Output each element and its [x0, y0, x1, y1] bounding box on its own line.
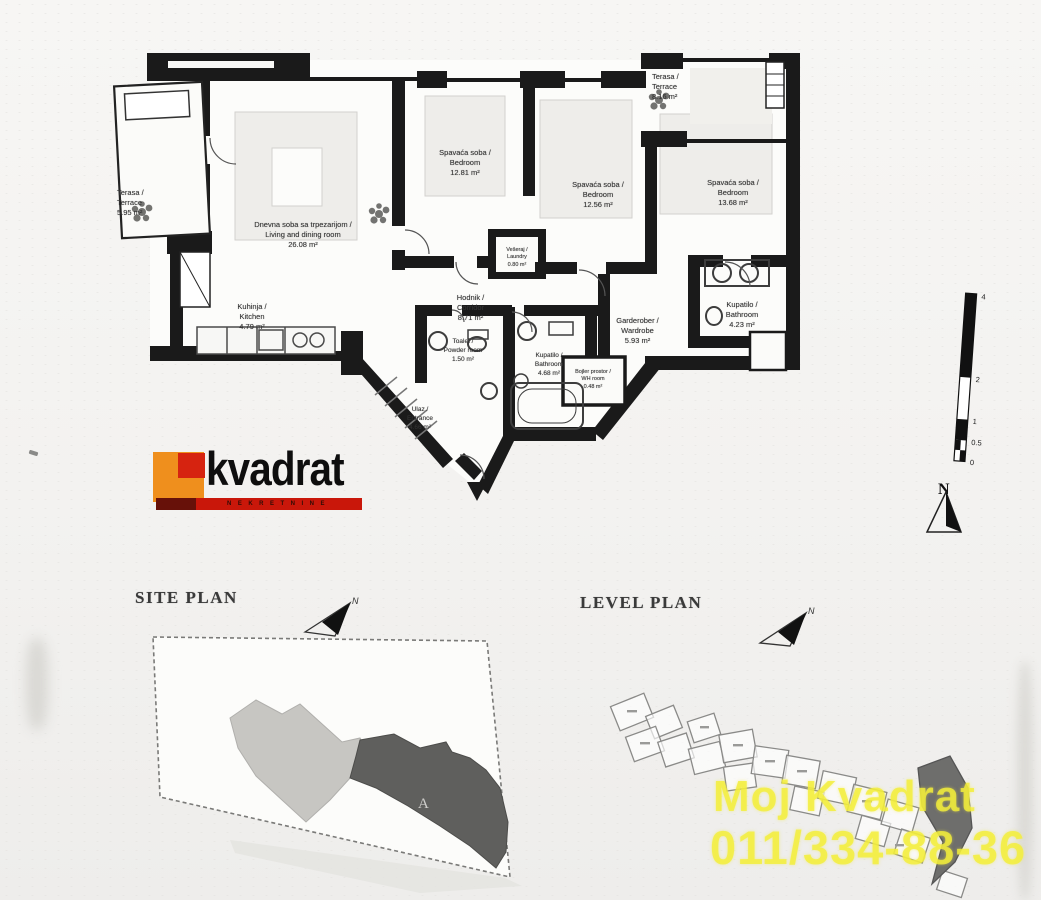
- site-plan-title: SITE PLAN: [135, 588, 238, 608]
- level-plan-title: LEVEL PLAN: [580, 593, 702, 613]
- scale-bar: 4 2 1 0.5 0: [954, 291, 993, 467]
- room-label-terrace-left: Terasa / Terrace5.95 m²: [117, 178, 169, 228]
- room-label-bathroom-2: Kupatilo / Bathroom4.23 m²: [708, 290, 776, 340]
- room-label-bedroom-1: Spavaća soba / Bedroom12.81 m²: [425, 138, 505, 188]
- svg-text:N: N: [352, 596, 359, 606]
- room-label-laundry: Vešeraj / Laundry0.80 m²: [496, 240, 538, 277]
- scan-smudge-left: [26, 638, 48, 730]
- room-label-wardrobe: Garderober / Wardrobe5.93 m²: [600, 306, 675, 356]
- logo-tagline: NEKRETNINE: [187, 501, 331, 507]
- svg-text:0.5: 0.5: [971, 438, 982, 448]
- room-label-entrance: Ulaz / Entrance4.66 m²: [392, 398, 448, 441]
- site-plan-drawing: A N: [153, 596, 522, 893]
- north-arrow: N: [927, 481, 961, 532]
- svg-text:1: 1: [972, 417, 977, 426]
- room-label-powder-room: Toalet / Powder room1.50 m²: [428, 330, 498, 373]
- kvadrat-logo: kvadrat NEKRETNINE: [153, 447, 367, 515]
- watermark-phone: 011/334-88-36: [710, 820, 1026, 875]
- room-label-bedroom-2: Spavaća soba / Bedroom12.56 m²: [558, 170, 638, 220]
- room-label-corridor: Hodnik / Corridor8.71 m²: [438, 283, 503, 333]
- svg-text:0: 0: [970, 458, 975, 467]
- scanned-floorplan-page: 4 2 1 0.5 0 N A N: [0, 0, 1041, 900]
- floorplan: [114, 53, 800, 501]
- room-label-living-dining: Dnevna soba sa trpezarijom / Living and …: [238, 210, 368, 260]
- svg-text:2: 2: [975, 375, 980, 384]
- room-label-bedroom-3: Spavaća soba / Bedroom13.68 m²: [693, 168, 773, 218]
- logo-wordmark: kvadrat: [206, 441, 344, 496]
- svg-text:N: N: [808, 606, 815, 616]
- watermark-brand: Moj Kvadrat: [713, 772, 976, 822]
- room-label-kitchen: Kuhinja / Kitchen4.79 m²: [222, 292, 282, 342]
- svg-text:A: A: [418, 796, 429, 812]
- logo-red-square: [178, 453, 205, 478]
- svg-text:4: 4: [981, 292, 986, 301]
- logo-bar-dark-cap: [156, 498, 196, 510]
- room-label-terrace-top: Terasa / Terrace8.16 m²: [652, 62, 706, 112]
- room-label-wh-room: Bojler prostor / WH room0.48 m²: [562, 362, 624, 399]
